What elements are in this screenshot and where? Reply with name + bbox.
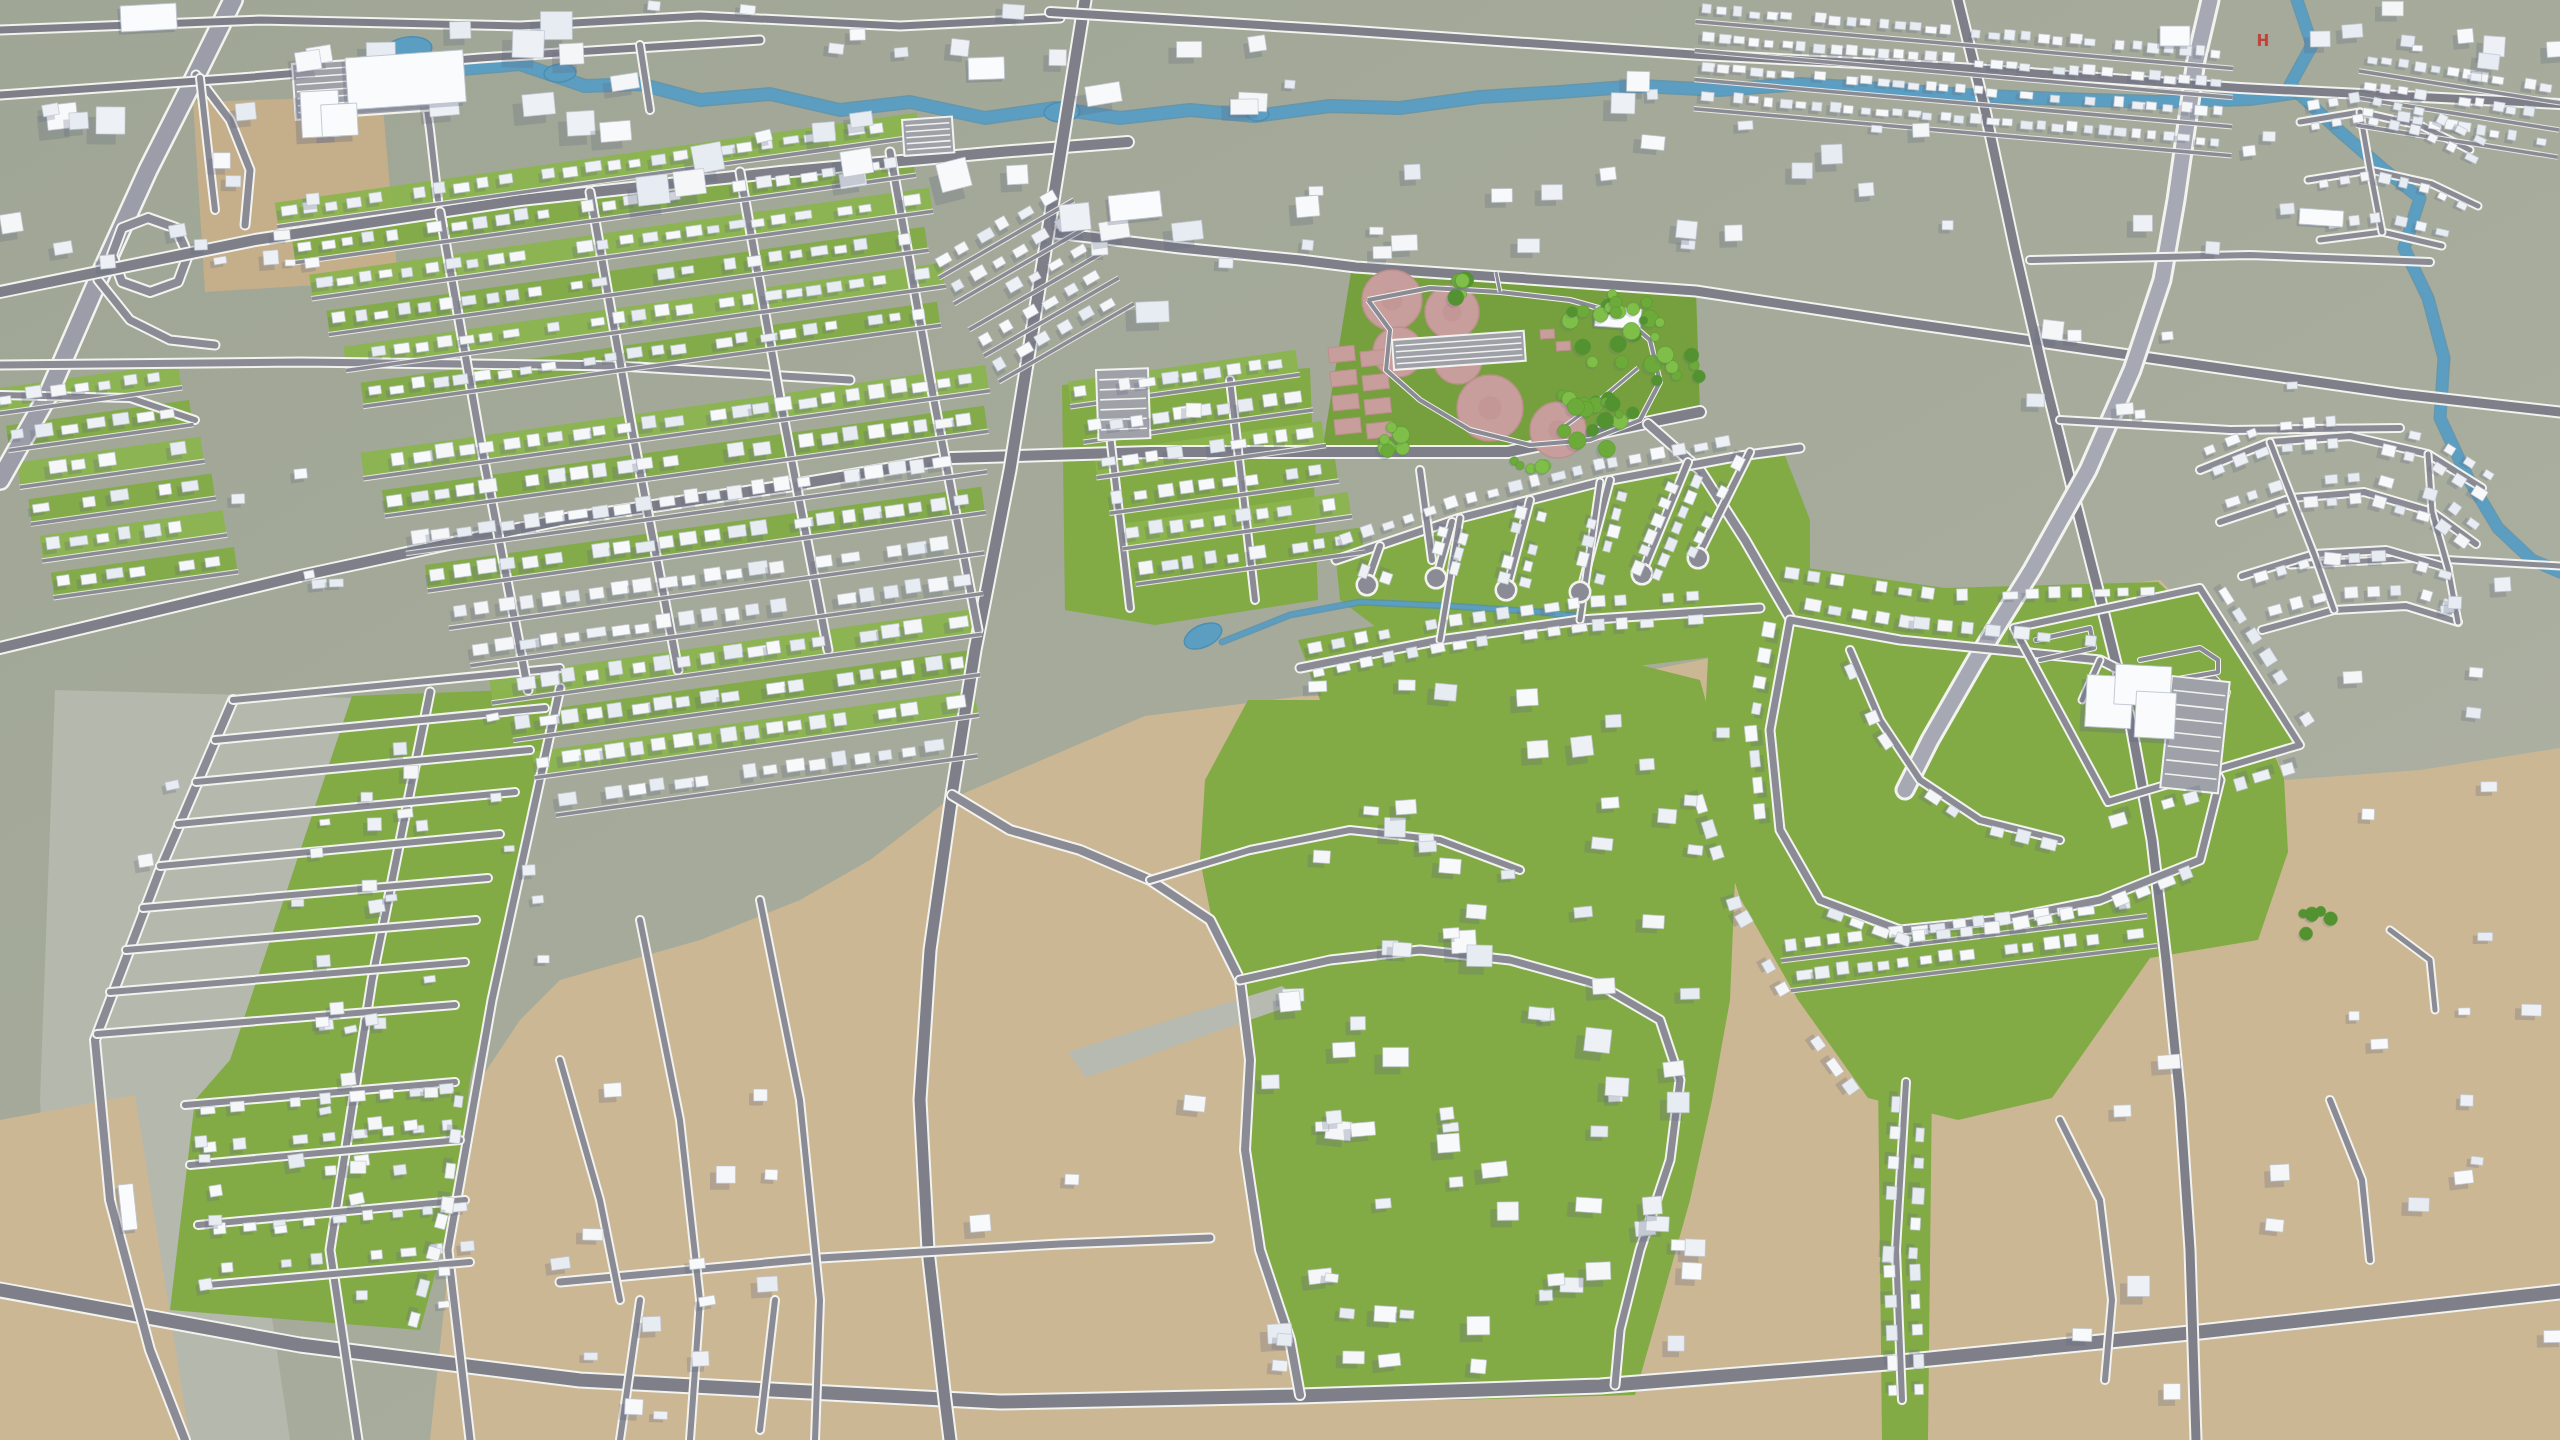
tree: [1657, 346, 1674, 363]
tree: [1567, 306, 1578, 317]
sports-field: [1328, 345, 1355, 363]
tree: [1567, 398, 1584, 415]
parking-lot: [902, 117, 954, 156]
tree: [1381, 444, 1394, 457]
tree: [1640, 316, 1648, 324]
tree: [1655, 318, 1664, 327]
sports-field: [1540, 329, 1555, 339]
tree: [1610, 307, 1622, 319]
tree: [1652, 375, 1663, 386]
retail-box: [117, 3, 177, 35]
tree: [1615, 410, 1623, 418]
tree: [1516, 462, 1524, 470]
tree: [2299, 909, 2308, 918]
tree: [1386, 422, 1397, 433]
hospital-marker: H: [2257, 34, 2270, 49]
sports-field: [1330, 369, 1357, 387]
tree: [1627, 407, 1639, 419]
tree: [1651, 332, 1660, 341]
tree: [1615, 355, 1629, 369]
sports-field: [1362, 373, 1389, 391]
hwy-depot: [2157, 26, 2190, 49]
tree: [1641, 297, 1653, 309]
tree: [1597, 412, 1614, 429]
sports-field: [1334, 417, 1361, 435]
sports-field: [1364, 397, 1391, 415]
tree: [1623, 322, 1641, 340]
tree: [2324, 912, 2338, 926]
map-scene: [0, 0, 2560, 1440]
store-top-mid: [965, 57, 1005, 83]
tree: [1558, 424, 1571, 437]
tree: [1693, 370, 1706, 383]
city-3d-map: [0, 0, 2560, 1440]
strip-mall-ne: [2297, 208, 2344, 229]
tree: [1575, 339, 1591, 355]
big-box-store: [341, 50, 466, 114]
sports-field: [1332, 393, 1359, 411]
sports-field: [1360, 349, 1387, 367]
tree: [1455, 274, 1469, 288]
tree: [1535, 460, 1549, 474]
tree: [1610, 336, 1626, 352]
tree: [1684, 348, 1698, 362]
tree: [1568, 432, 1586, 450]
tree: [1598, 440, 1615, 457]
tree: [2299, 927, 2312, 940]
tree: [1380, 435, 1390, 445]
tree: [1448, 290, 1464, 306]
tree: [1605, 396, 1620, 411]
tree: [1627, 303, 1640, 316]
sports-field: [1556, 341, 1571, 351]
tree: [2307, 910, 2318, 921]
tree: [1587, 356, 1598, 367]
tree: [1577, 305, 1590, 318]
plaza-building: [1105, 191, 1163, 226]
